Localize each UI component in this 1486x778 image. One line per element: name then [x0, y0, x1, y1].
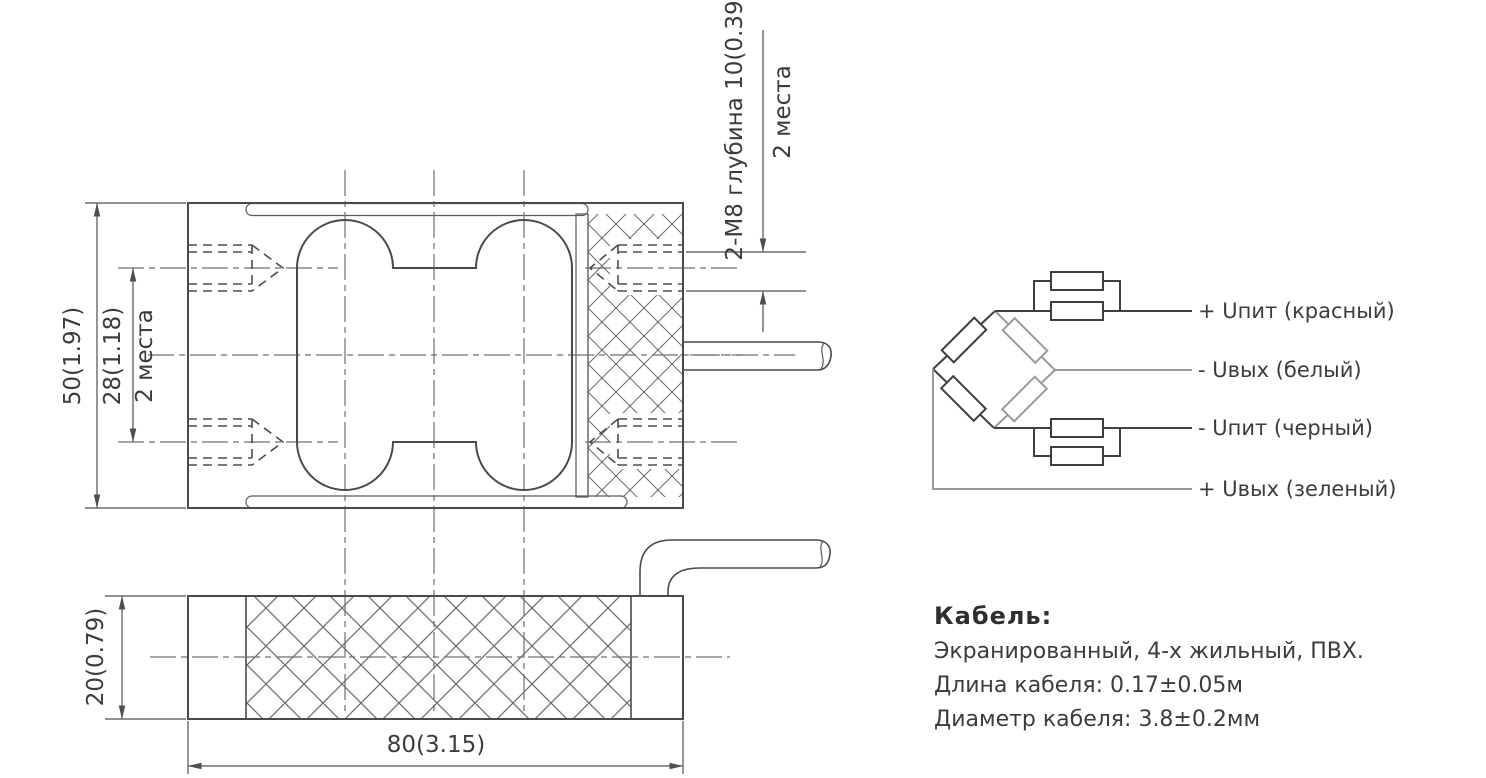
side-view: [150, 540, 830, 719]
cable-spec-line-type: Экранированный, 4-х жильный, ПВХ.: [934, 639, 1364, 664]
dim-length-label: 80(3.15): [387, 732, 485, 758]
cable-break-icon: [821, 343, 824, 369]
dim-hole-spacing: 28(1.18) 2 места: [100, 268, 158, 442]
compensation-resistors-top: [1034, 272, 1120, 320]
resistor-icon: [1051, 419, 1103, 437]
cable-outline: [683, 342, 831, 370]
wire-label-excitation-minus: - Uпит (черный): [1198, 416, 1373, 440]
wire-label-signal-minus: - Uвых (белый): [1198, 358, 1362, 382]
load-cell-drawing-page: 50(1.97) 28(1.18) 2 места 2-M8 глубина 1…: [0, 0, 1486, 778]
cable-side-view: [640, 540, 830, 596]
resistor-icon: [1051, 272, 1103, 290]
wire-label-signal-plus: + Uвых (зеленый): [1198, 477, 1396, 501]
wire-label-excitation-plus: + Uпит (красный): [1198, 299, 1395, 323]
cable-top-view: [683, 342, 831, 370]
cable-spec-line-length: Длина кабеля: 0.17±0.05м: [934, 673, 1243, 698]
strain-gauge-icon: [941, 376, 986, 421]
dim-hole-spacing-label: 28(1.18): [100, 307, 126, 405]
thread-spec-label: 2-M8 глубина 10(0.39): [722, 0, 748, 261]
strain-gauge-icon: [1002, 377, 1047, 422]
hole-pocket-right-bottom: [610, 413, 683, 469]
sealant-strip-bottom: [246, 496, 627, 508]
dim-hole-spacing-places-label: 2 места: [132, 309, 158, 403]
cable-spec-heading: Кабель:: [934, 602, 1052, 630]
cable-spec-line-diameter: Диаметр кабеля: 3.8±0.2мм: [934, 707, 1260, 732]
cable-break-icon: [820, 541, 823, 567]
compensation-resistors-bottom: [1034, 419, 1120, 465]
sealant-strip-top: [246, 204, 588, 216]
drawing-canvas: 50(1.97) 28(1.18) 2 места 2-M8 глубина 1…: [0, 0, 1486, 778]
bridge-circuit: + Uпит (красный) - Uвых (белый) - Uпит (…: [933, 272, 1396, 501]
thread-places-label: 2 места: [770, 65, 796, 159]
dim-thread-note: 2-M8 глубина 10(0.39) 2 места: [686, 0, 806, 332]
resistor-icon: [1051, 302, 1103, 320]
dim-thickness-label: 20(0.79): [83, 608, 109, 706]
dim-length: 80(3.15): [188, 721, 683, 774]
strain-gauge-icon: [942, 318, 987, 363]
strain-gauge-icon: [1003, 318, 1048, 363]
resistor-icon: [1051, 447, 1103, 465]
hole-pocket-right-top: [610, 239, 683, 295]
dim-height-label: 50(1.97): [60, 307, 86, 405]
cable-spec-block: Кабель: Экранированный, 4-х жильный, ПВХ…: [934, 602, 1364, 732]
